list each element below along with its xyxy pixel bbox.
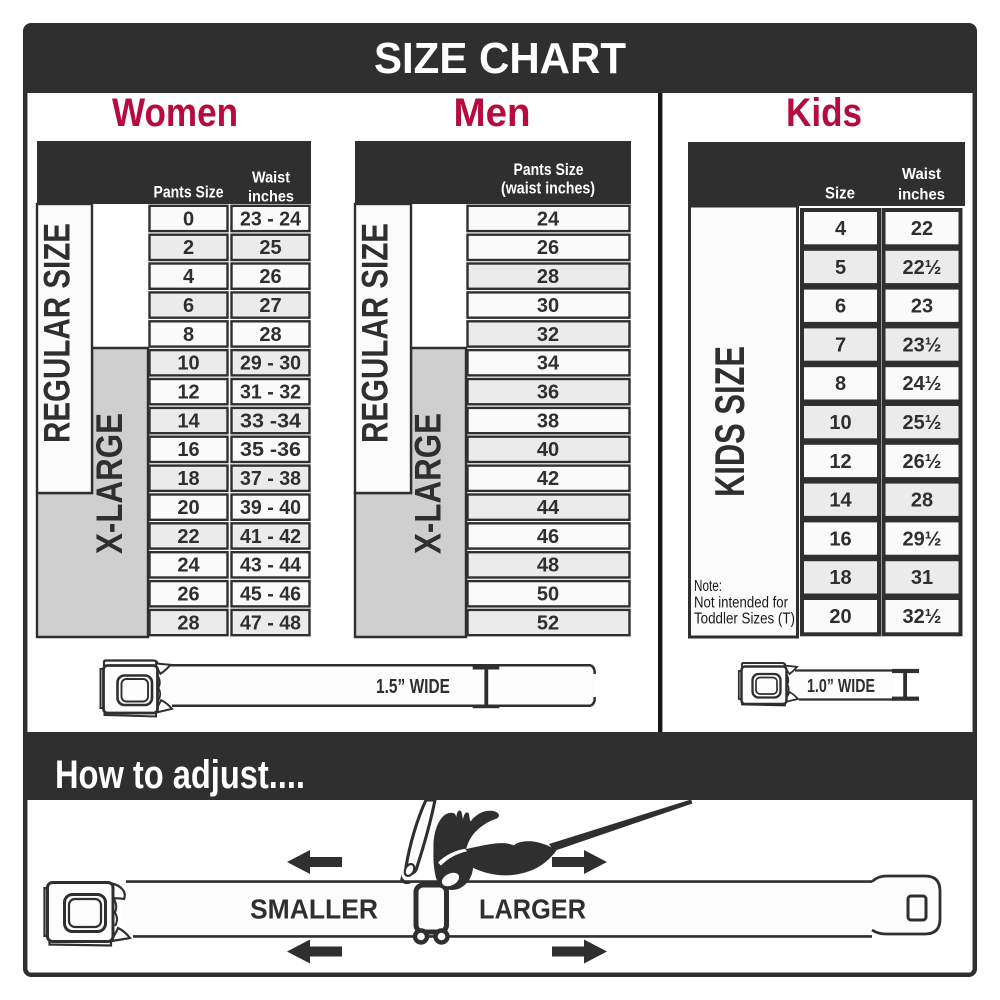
svg-text:28: 28 <box>911 490 933 512</box>
svg-text:45 - 46: 45 - 46 <box>240 584 301 606</box>
svg-text:23: 23 <box>911 296 933 318</box>
svg-text:1.0” WIDE: 1.0” WIDE <box>807 676 875 696</box>
svg-text:(waist inches): (waist inches) <box>501 180 595 198</box>
svg-text:14: 14 <box>177 410 200 432</box>
svg-text:40: 40 <box>537 439 559 461</box>
svg-text:23½: 23½ <box>903 334 942 356</box>
svg-text:REGULAR SIZE: REGULAR SIZE <box>37 223 78 443</box>
svg-text:50: 50 <box>537 584 559 606</box>
svg-text:29 - 30: 29 - 30 <box>240 353 301 375</box>
svg-text:48: 48 <box>537 555 559 577</box>
svg-text:4: 4 <box>835 218 847 240</box>
svg-text:6: 6 <box>835 296 846 318</box>
svg-text:22: 22 <box>911 218 933 240</box>
svg-text:24: 24 <box>177 555 200 577</box>
svg-text:28: 28 <box>259 324 281 346</box>
svg-text:4: 4 <box>183 266 195 288</box>
svg-text:26: 26 <box>177 584 199 606</box>
svg-text:25½: 25½ <box>903 412 942 434</box>
svg-text:32: 32 <box>537 324 559 346</box>
svg-text:5: 5 <box>835 257 846 279</box>
svg-text:10: 10 <box>829 412 851 434</box>
svg-text:Women: Women <box>112 91 238 135</box>
svg-text:26: 26 <box>537 237 559 259</box>
svg-text:22: 22 <box>177 526 199 548</box>
svg-text:52: 52 <box>537 612 559 634</box>
svg-text:35 -36: 35 -36 <box>240 439 301 461</box>
svg-text:16: 16 <box>829 528 851 550</box>
svg-text:24½: 24½ <box>903 373 942 395</box>
svg-text:37 - 38: 37 - 38 <box>240 468 301 490</box>
svg-text:33 -34: 33 -34 <box>240 410 302 432</box>
svg-text:Pants Size: Pants Size <box>154 184 224 202</box>
svg-text:Waist: Waist <box>902 166 942 183</box>
svg-text:28: 28 <box>177 612 199 634</box>
svg-text:X-LARGE: X-LARGE <box>408 413 449 554</box>
svg-text:Men: Men <box>454 91 531 135</box>
svg-text:Not intended for: Not intended for <box>694 595 788 612</box>
svg-text:23 - 24: 23 - 24 <box>240 208 302 230</box>
svg-text:Size: Size <box>825 185 855 203</box>
svg-text:7: 7 <box>835 334 846 356</box>
svg-text:KIDS SIZE: KIDS SIZE <box>706 346 753 497</box>
svg-text:16: 16 <box>177 439 199 461</box>
svg-text:8: 8 <box>183 324 194 346</box>
svg-text:12: 12 <box>177 382 199 404</box>
svg-text:Kids: Kids <box>786 91 862 135</box>
svg-text:12: 12 <box>829 451 851 473</box>
svg-text:31 - 32: 31 - 32 <box>240 382 301 404</box>
svg-text:Pants Size: Pants Size <box>514 161 584 179</box>
svg-text:Toddler Sizes (T): Toddler Sizes (T) <box>694 611 795 628</box>
svg-text:24: 24 <box>537 208 560 230</box>
svg-text:18: 18 <box>829 567 851 589</box>
svg-text:27: 27 <box>259 295 281 317</box>
svg-text:inches: inches <box>248 189 294 206</box>
svg-text:8: 8 <box>835 373 846 395</box>
svg-text:SIZE CHART: SIZE CHART <box>374 34 626 83</box>
svg-text:0: 0 <box>183 208 194 230</box>
svg-text:20: 20 <box>829 606 851 628</box>
svg-text:47 - 48: 47 - 48 <box>240 612 301 634</box>
svg-text:Waist: Waist <box>252 170 291 187</box>
svg-text:14: 14 <box>829 490 852 512</box>
svg-text:REGULAR SIZE: REGULAR SIZE <box>355 223 396 443</box>
svg-text:39 - 40: 39 - 40 <box>240 497 301 519</box>
svg-text:41 - 42: 41 - 42 <box>240 526 301 548</box>
svg-text:29½: 29½ <box>903 528 942 550</box>
svg-text:LARGER: LARGER <box>479 894 586 925</box>
svg-text:X-LARGE: X-LARGE <box>89 413 130 554</box>
svg-text:inches: inches <box>898 187 945 204</box>
svg-text:20: 20 <box>177 497 199 519</box>
svg-text:18: 18 <box>177 468 199 490</box>
svg-text:How to adjust....: How to adjust.... <box>55 753 305 797</box>
svg-text:2: 2 <box>183 237 194 259</box>
svg-text:34: 34 <box>537 353 560 375</box>
svg-text:25: 25 <box>259 237 281 259</box>
svg-text:42: 42 <box>537 468 559 490</box>
svg-text:10: 10 <box>177 353 199 375</box>
svg-text:28: 28 <box>537 266 559 288</box>
svg-text:32½: 32½ <box>903 606 942 628</box>
svg-text:1.5” WIDE: 1.5” WIDE <box>376 676 450 698</box>
svg-text:38: 38 <box>537 410 559 432</box>
svg-text:SMALLER: SMALLER <box>250 894 378 925</box>
svg-text:26: 26 <box>259 266 281 288</box>
svg-text:43 - 44: 43 - 44 <box>240 555 302 577</box>
svg-text:22½: 22½ <box>903 257 942 279</box>
svg-text:Note:: Note: <box>694 578 722 595</box>
svg-text:31: 31 <box>911 567 933 589</box>
svg-text:30: 30 <box>537 295 559 317</box>
svg-text:36: 36 <box>537 382 559 404</box>
svg-text:26½: 26½ <box>903 451 942 473</box>
svg-text:6: 6 <box>183 295 194 317</box>
svg-text:44: 44 <box>537 497 560 519</box>
svg-text:46: 46 <box>537 526 559 548</box>
